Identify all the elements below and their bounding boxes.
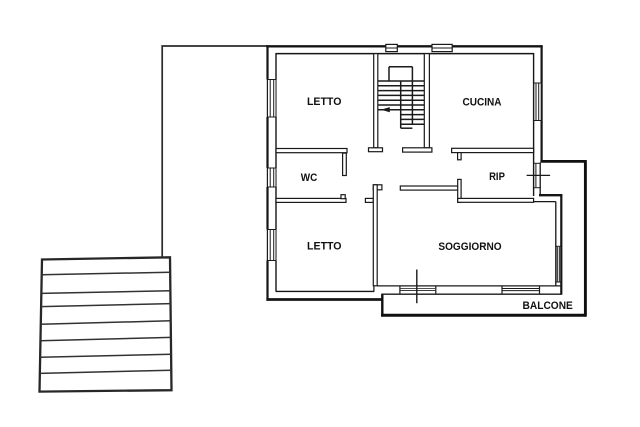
svg-text:LETTO: LETTO bbox=[307, 96, 342, 108]
svg-text:BALCONE: BALCONE bbox=[523, 300, 573, 312]
svg-text:RIP: RIP bbox=[489, 171, 505, 183]
svg-text:SOGGIORNO: SOGGIORNO bbox=[438, 241, 502, 253]
svg-text:WC: WC bbox=[301, 172, 318, 184]
svg-text:CUCINA: CUCINA bbox=[463, 97, 502, 109]
svg-text:LETTO: LETTO bbox=[307, 241, 342, 253]
